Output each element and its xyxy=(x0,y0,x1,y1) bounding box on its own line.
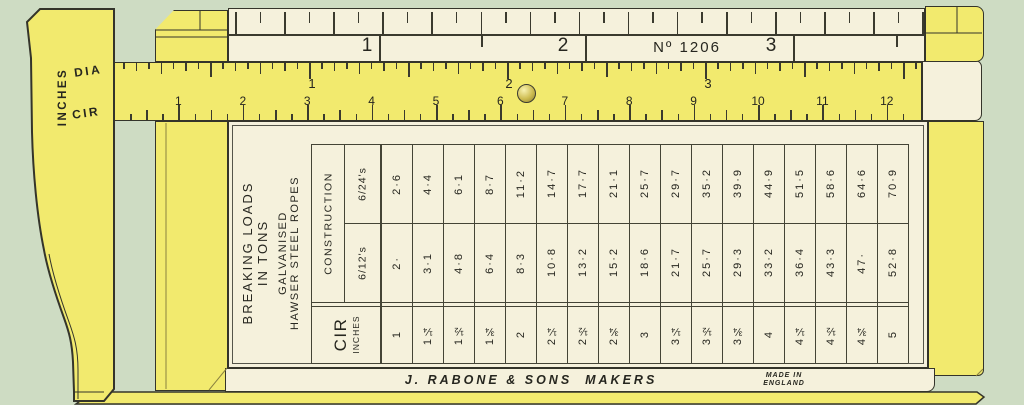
cir-scale-tick xyxy=(291,114,293,121)
cell-612: 2· xyxy=(381,223,412,302)
dia-scale-tick xyxy=(284,63,286,71)
dia-scale-tick xyxy=(371,63,373,69)
dia-scale-tick xyxy=(569,63,571,69)
dia-scale-tick xyxy=(829,63,831,71)
cir-scale-number: 1 xyxy=(175,94,182,108)
slider-band-tick xyxy=(726,12,728,34)
dia-scale-tick xyxy=(903,63,905,79)
slider-band-tick xyxy=(873,12,875,34)
slider-strip: Nº 1206 123 xyxy=(228,8,925,62)
row-label-624-text: 6/24's xyxy=(356,167,368,201)
jaw-bevel-line xyxy=(49,254,78,399)
cell-612-value: 6·4 xyxy=(484,252,496,274)
cell-612-value: 21·7 xyxy=(670,247,682,277)
table-grid-vline xyxy=(908,144,909,363)
cir-scale-tick xyxy=(484,114,486,121)
cell-624: 6·1 xyxy=(443,144,474,223)
cell-624: 58·6 xyxy=(815,144,846,223)
dia-scale-tick xyxy=(210,63,212,77)
slider-right-cap xyxy=(925,6,984,62)
slider-band-tick xyxy=(284,12,286,34)
cir-scale-tick xyxy=(259,114,261,121)
cell-624: 4·4 xyxy=(412,144,443,223)
slider-band-tick xyxy=(677,12,679,34)
cir-scale-tick xyxy=(130,114,132,121)
cell-612: 43·3 xyxy=(815,223,846,302)
slider-band-tick xyxy=(849,12,851,23)
cir-scale-tick xyxy=(533,110,535,120)
cir-scale-tick xyxy=(549,114,551,121)
dia-scale-tick xyxy=(346,63,348,69)
jaw-dia-label: DIA xyxy=(73,62,103,80)
cir-scale-number: 4 xyxy=(368,94,375,108)
cell-624: 8·7 xyxy=(474,144,505,223)
slider-band-tick xyxy=(898,12,900,23)
cell-624: 2·6 xyxy=(381,144,412,223)
cell-cir-value: 1¾ xyxy=(484,323,496,345)
main-ruler: 123123456789101112 xyxy=(110,62,922,121)
cir-scale-number: 11 xyxy=(816,94,828,108)
slider-band-tick xyxy=(407,12,409,23)
cell-624-value: 25·7 xyxy=(639,168,651,198)
cell-624: 70·9 xyxy=(877,144,908,223)
dia-scale-tick xyxy=(767,63,769,69)
dia-scale-tick xyxy=(470,63,472,69)
dia-scale-tick xyxy=(173,63,175,69)
cell-612: 33·2 xyxy=(753,223,784,302)
cir-header: CIR INCHES xyxy=(311,306,380,363)
cir-scale-tick xyxy=(146,110,148,120)
dia-scale-tick xyxy=(730,63,732,71)
dia-scale-number: 2 xyxy=(505,76,512,91)
dia-scale-tick xyxy=(668,63,670,69)
dia-scale-number: 1 xyxy=(308,76,315,91)
cir-scale-tick xyxy=(661,110,663,120)
cir-scale-tick xyxy=(339,110,341,120)
dia-scale-tick xyxy=(606,63,608,77)
cir-scale-tick xyxy=(388,114,390,121)
cell-624-value: 70·9 xyxy=(887,168,899,198)
cell-612: 6·4 xyxy=(474,223,505,302)
dia-scale-tick xyxy=(680,63,682,71)
dia-scale-tick xyxy=(742,63,744,69)
cir-header-text: CIR xyxy=(331,318,351,352)
dia-scale-tick xyxy=(198,63,200,69)
cell-cir-value: 3½ xyxy=(701,323,713,345)
cell-cir-value: 4½ xyxy=(825,323,837,345)
cell-612-value: 2· xyxy=(391,256,403,270)
made-in-line1: MADE IN xyxy=(754,372,814,380)
table-grid-hline xyxy=(311,302,908,303)
cir-scale-tick xyxy=(839,114,841,121)
cell-cir: 1¾ xyxy=(474,306,505,363)
cir-scale-tick xyxy=(227,114,229,121)
slider-band-tick xyxy=(530,12,532,34)
maker-strip: J. RABONE & SONS MAKERS MADE IN ENGLAND xyxy=(225,368,935,392)
cell-cir: 3½ xyxy=(691,306,722,363)
cell-cir-value: 4 xyxy=(763,330,775,338)
table-title-block: BREAKING LOADS IN TONS GALVANISED HAWSER… xyxy=(233,138,307,368)
cell-cir: 1 xyxy=(381,306,412,363)
cell-612: 21·7 xyxy=(660,223,691,302)
cir-scale-number: 12 xyxy=(880,94,893,108)
cir-scale-number: 7 xyxy=(561,94,568,108)
dia-scale-tick xyxy=(247,63,249,69)
slider-band-tick xyxy=(701,12,703,23)
slider-band-tick xyxy=(824,12,826,34)
dia-scale-tick xyxy=(408,63,410,77)
cell-cir: 3 xyxy=(629,306,660,363)
dia-scale-tick xyxy=(420,63,422,69)
slider-band-tick xyxy=(481,12,483,34)
dia-scale-tick xyxy=(792,63,794,69)
cell-624: 64·6 xyxy=(846,144,877,223)
cell-cir-value: 3¼ xyxy=(670,323,682,345)
cell-624: 29·7 xyxy=(660,144,691,223)
cell-612: 13·2 xyxy=(567,223,598,302)
table-grid-hline xyxy=(311,363,908,364)
cell-612: 52·8 xyxy=(877,223,908,302)
dia-scale-tick xyxy=(755,63,757,74)
made-in-label: MADE IN ENGLAND xyxy=(754,372,814,388)
cir-scale-tick xyxy=(275,110,277,120)
cell-cir-value: 2¼ xyxy=(546,323,558,345)
maker-label: J. RABONE & SONS MAKERS xyxy=(405,373,658,387)
cell-624-value: 51·5 xyxy=(794,168,806,198)
slider-band-tick xyxy=(775,12,777,34)
dia-scale-tick xyxy=(433,63,435,71)
dia-scale-tick xyxy=(656,63,658,74)
dia-scale-tick xyxy=(359,63,361,74)
cir-scale-tick xyxy=(710,114,712,121)
dia-scale-tick xyxy=(235,63,237,71)
cell-624-value: 35·2 xyxy=(701,168,713,198)
dia-scale-tick xyxy=(445,63,447,69)
dia-scale-tick xyxy=(594,63,596,69)
dia-scale-tick xyxy=(854,63,856,74)
slider-band-tick xyxy=(800,12,802,23)
slider-band-tick xyxy=(579,12,581,34)
cell-cir: 2½ xyxy=(567,306,598,363)
cell-624: 39·9 xyxy=(722,144,753,223)
cir-scale-tick xyxy=(726,110,728,120)
dia-scale-tick xyxy=(396,63,398,69)
cir-scale-tick xyxy=(613,114,615,121)
cir-scale-tick xyxy=(903,114,905,121)
dia-scale-tick xyxy=(581,63,583,71)
cir-scale-tick xyxy=(581,114,583,121)
dia-scale-tick xyxy=(482,63,484,71)
cell-612: 10·8 xyxy=(536,223,567,302)
cell-612: 29·3 xyxy=(722,223,753,302)
table-subtitle-line2: HAWSER STEEL ROPES xyxy=(289,176,301,330)
cell-612: 15·2 xyxy=(598,223,629,302)
slider-band-tick xyxy=(554,12,556,23)
cir-scale-tick xyxy=(855,110,857,120)
cell-612: 25·7 xyxy=(691,223,722,302)
table-grid-vline xyxy=(311,144,312,363)
slider-unit-tick xyxy=(379,34,381,61)
row-label-612: 6/12's xyxy=(344,223,380,302)
caliper-instrument: 123123456789101112 Nº 1206 123 BREAKING … xyxy=(0,0,1024,405)
slider-band-tick xyxy=(431,12,433,34)
dia-scale-tick xyxy=(544,63,546,69)
cell-612-value: 33·2 xyxy=(763,247,775,277)
breaking-loads-table: BREAKING LOADS IN TONS GALVANISED HAWSER… xyxy=(228,121,928,368)
cell-624: 44·9 xyxy=(753,144,784,223)
cell-624-value: 39·9 xyxy=(732,168,744,198)
cell-612-value: 43·3 xyxy=(825,247,837,277)
slider-scale-number: 1 xyxy=(362,35,373,57)
dia-scale-tick xyxy=(123,63,125,69)
cell-cir-value: 2 xyxy=(515,330,527,338)
cir-scale-tick xyxy=(871,114,873,121)
dia-scale-tick xyxy=(272,63,274,69)
cir-scale-tick xyxy=(195,114,197,121)
slider-band-tick xyxy=(358,12,360,23)
cell-624-value: 8·7 xyxy=(484,173,496,195)
construction-label: CONSTRUCTION xyxy=(322,172,334,275)
cir-scale-number: 3 xyxy=(304,94,311,108)
construction-header: CONSTRUCTION xyxy=(311,144,344,302)
cir-scale-tick xyxy=(742,114,744,121)
slider-band-tick xyxy=(603,12,605,23)
slider-half-tick xyxy=(896,34,898,47)
row-label-612-text: 6/12's xyxy=(356,246,368,280)
cir-scale-tick xyxy=(420,114,422,121)
dia-scale-tick xyxy=(891,63,893,69)
cell-cir-value: 4¼ xyxy=(794,323,806,345)
dia-scale-tick xyxy=(618,63,620,69)
cell-612-value: 29·3 xyxy=(732,247,744,277)
cir-scale-tick xyxy=(774,114,776,121)
slider-band-tick xyxy=(652,12,654,23)
dia-scale-tick xyxy=(693,63,695,69)
cir-scale-number: 8 xyxy=(626,94,633,108)
dia-scale-tick xyxy=(841,63,843,69)
dia-scale-tick xyxy=(631,63,633,71)
cir-scale-tick xyxy=(323,114,325,121)
cell-612-value: 10·8 xyxy=(546,247,558,277)
cell-cir: 4½ xyxy=(815,306,846,363)
cell-cir-value: 4¾ xyxy=(856,323,868,345)
cell-624-value: 14·7 xyxy=(546,168,558,198)
dia-scale-tick xyxy=(161,63,163,74)
cell-cir-value: 5 xyxy=(887,330,899,338)
dia-scale-tick xyxy=(185,63,187,71)
cell-624: 25·7 xyxy=(629,144,660,223)
dia-scale-tick xyxy=(816,63,818,69)
dia-scale-tick xyxy=(334,63,336,71)
cell-624-value: 11·2 xyxy=(515,169,527,198)
cell-612-value: 36·4 xyxy=(794,247,806,277)
cir-scale-tick xyxy=(678,114,680,121)
cir-scale-tick xyxy=(162,114,164,121)
dia-scale-tick xyxy=(804,63,806,77)
cell-cir: 2 xyxy=(505,306,536,363)
cell-612-value: 25·7 xyxy=(701,247,713,277)
slider-scale-number: 3 xyxy=(766,35,777,57)
cell-624: 14·7 xyxy=(536,144,567,223)
cell-cir: 4¾ xyxy=(846,306,877,363)
dia-scale-tick xyxy=(260,63,262,74)
cell-612-value: 52·8 xyxy=(887,247,899,277)
cell-624: 21·1 xyxy=(598,144,629,223)
cell-612: 3·1 xyxy=(412,223,443,302)
cell-cir: 5 xyxy=(877,306,908,363)
slider-half-tick xyxy=(481,34,483,47)
dia-scale-tick xyxy=(519,63,521,69)
dia-scale-tick xyxy=(136,63,138,71)
cell-cir: 1¼ xyxy=(412,306,443,363)
cir-scale-number: 2 xyxy=(239,94,246,108)
cir-scale-tick xyxy=(452,114,454,121)
dia-scale-tick xyxy=(148,63,150,69)
cell-cir: 2¾ xyxy=(598,306,629,363)
slider-band-tick xyxy=(751,12,753,23)
cell-cir: 3¾ xyxy=(722,306,753,363)
jaw-cir-label: CIR xyxy=(71,104,101,122)
dia-scale-tick xyxy=(557,63,559,74)
cell-624: 35·2 xyxy=(691,144,722,223)
cell-624: 51·5 xyxy=(784,144,815,223)
cell-cir: 4¼ xyxy=(784,306,815,363)
cir-scale-number: 5 xyxy=(433,94,440,108)
slider-scale-number: 2 xyxy=(558,35,569,57)
cell-624-value: 64·6 xyxy=(856,168,868,198)
dia-scale-tick xyxy=(643,63,645,69)
cell-cir-value: 1¼ xyxy=(422,323,434,345)
dia-scale-tick xyxy=(222,63,224,69)
cell-612: 36·4 xyxy=(784,223,815,302)
bottom-base-strip xyxy=(76,392,984,404)
dia-scale-tick xyxy=(297,63,299,69)
rivet-stud xyxy=(517,84,536,103)
cell-612: 18·6 xyxy=(629,223,660,302)
cell-612-value: 15·2 xyxy=(608,247,620,277)
slider-unit-tick xyxy=(793,34,795,61)
dia-scale-tick xyxy=(321,63,323,69)
cir-scale-tick xyxy=(597,110,599,120)
row-label-624: 6/24's xyxy=(344,144,380,223)
dia-scale-tick xyxy=(915,63,917,69)
table-title-line1: BREAKING LOADS xyxy=(240,182,255,325)
cir-scale-tick xyxy=(790,110,792,120)
cir-scale-tick xyxy=(517,114,519,121)
slider-band-tick xyxy=(628,12,630,34)
dia-scale-tick xyxy=(458,63,460,74)
cell-612-value: 3·1 xyxy=(422,252,434,274)
cell-cir: 2¼ xyxy=(536,306,567,363)
slider-jaw-block xyxy=(155,10,228,62)
dia-scale-tick xyxy=(532,63,534,71)
dia-scale-tick xyxy=(383,63,385,71)
cell-cir: 3¼ xyxy=(660,306,691,363)
cell-612: 8·3 xyxy=(505,223,536,302)
cell-612-value: 4·8 xyxy=(453,252,465,274)
model-number-label: Nº 1206 xyxy=(653,39,721,56)
dia-scale-tick xyxy=(878,63,880,71)
cell-612-value: 18·6 xyxy=(639,247,651,277)
dia-scale-tick xyxy=(779,63,781,71)
cir-scale-tick xyxy=(468,110,470,120)
cir-scale-tick xyxy=(211,110,213,120)
cell-cir-value: 3¾ xyxy=(732,323,744,345)
cell-cir-value: 1½ xyxy=(453,323,465,345)
cir-scale-number: 10 xyxy=(751,94,764,108)
cell-624-value: 6·1 xyxy=(453,173,465,195)
jaw-inches-label-wrap: INCHES xyxy=(55,60,71,134)
cir-unit-text: INCHES xyxy=(351,315,361,353)
slider-band-tick xyxy=(382,12,384,34)
slider-band-tick xyxy=(333,12,335,34)
table-subtitle-line1: GALVANISED xyxy=(277,211,289,295)
slider-band-tick xyxy=(235,12,237,34)
cell-cir-value: 2½ xyxy=(577,323,589,345)
dia-scale-number: 3 xyxy=(704,76,711,91)
slider-band-tick xyxy=(922,12,924,34)
table-title-line2: IN TONS xyxy=(255,220,270,286)
cell-624-value: 21·1 xyxy=(608,168,620,198)
dia-scale-tick xyxy=(717,63,719,69)
body-left-end-block xyxy=(155,121,228,391)
dia-scale-tick xyxy=(495,63,497,69)
cell-624-value: 17·7 xyxy=(577,168,589,198)
cir-scale-number: 6 xyxy=(497,94,504,108)
cell-612: 4·8 xyxy=(443,223,474,302)
cell-624: 11·2 xyxy=(505,144,536,223)
slider-band-baseline xyxy=(229,34,926,36)
body-right-end-block xyxy=(928,121,984,376)
cir-scale-tick xyxy=(645,114,647,121)
cell-624-value: 58·6 xyxy=(825,168,837,198)
slider-unit-tick xyxy=(585,34,587,61)
cell-cir-value: 2¾ xyxy=(608,323,620,345)
cell-cir: 1½ xyxy=(443,306,474,363)
jaw-inches-label: INCHES xyxy=(57,68,69,126)
dia-scale-tick xyxy=(866,63,868,69)
cell-624-value: 4·4 xyxy=(422,173,434,195)
cell-612-value: 13·2 xyxy=(577,247,589,277)
slider-band-tick xyxy=(260,12,262,23)
slider-band-tick xyxy=(309,12,311,23)
cell-cir-value: 3 xyxy=(639,330,651,338)
cell-624-value: 44·9 xyxy=(763,168,775,198)
ruler-right-cap xyxy=(922,60,982,121)
slider-band-tick xyxy=(456,12,458,23)
cell-624-value: 29·7 xyxy=(670,168,682,198)
cir-scale-tick xyxy=(404,110,406,120)
cell-cir: 4 xyxy=(753,306,784,363)
made-in-line2: ENGLAND xyxy=(754,380,814,388)
cell-cir-value: 1 xyxy=(391,330,403,338)
cell-612-value: 8·3 xyxy=(515,252,527,274)
cir-scale-tick xyxy=(806,114,808,121)
cir-scale-tick xyxy=(356,114,358,121)
cell-612-value: 47· xyxy=(856,252,868,274)
cir-scale-number: 9 xyxy=(690,94,697,108)
cell-624-value: 2·6 xyxy=(391,173,403,195)
cell-624: 17·7 xyxy=(567,144,598,223)
cell-612: 47· xyxy=(846,223,877,302)
slider-band-tick xyxy=(505,12,507,23)
